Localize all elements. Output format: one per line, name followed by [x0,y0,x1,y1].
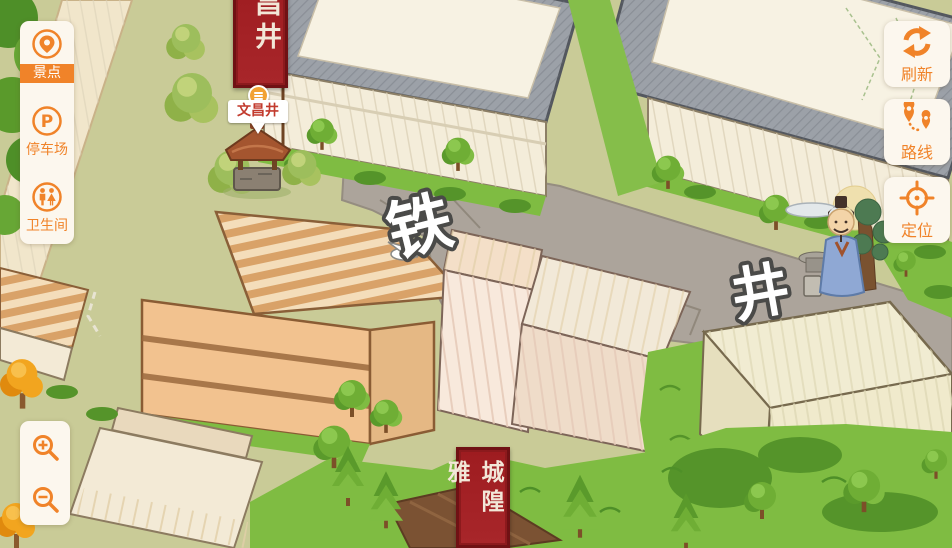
tool-label: 路线 [901,139,933,163]
poi-label[interactable]: 文昌井 [228,100,288,123]
tool-label: 刷新 [901,61,933,85]
restroom-icon [31,181,63,213]
signpost-banner-bottom: 城隍雅 [456,447,510,548]
sidebar-item-parking[interactable]: P 停车场 [20,105,74,159]
zoom-in-button[interactable] [28,430,62,464]
zoom-out-button[interactable] [28,482,62,516]
street-label-char-2: 井 [726,254,795,331]
parking-icon: P [31,105,63,137]
zoom-in-icon [28,430,62,464]
zoom-out-icon [28,482,62,516]
sidebar-item-label: 景点 [20,64,74,83]
zoom-panel [20,421,70,525]
locate-icon [899,180,935,216]
refresh-icon [899,24,935,60]
category-panel: 景点 P 停车场 卫生间 [20,21,74,244]
scenic-spot-icon [31,28,63,60]
sidebar-item-scenic-spots[interactable]: 景点 [20,28,74,83]
poi-arrow-icon [251,123,265,134]
svg-text:P: P [41,112,53,132]
refresh-button[interactable]: 刷新 [884,21,950,87]
sidebar-item-restroom[interactable]: 卫生间 [20,181,74,235]
tool-label: 定位 [901,217,933,241]
sidebar-item-label: 停车场 [26,141,68,159]
signpost-banner-top: 昌井 [233,0,288,88]
route-button[interactable]: 路线 [884,99,950,165]
locate-button[interactable]: 定位 [884,177,950,243]
route-icon [899,102,935,138]
sidebar-item-label: 卫生间 [26,217,68,235]
